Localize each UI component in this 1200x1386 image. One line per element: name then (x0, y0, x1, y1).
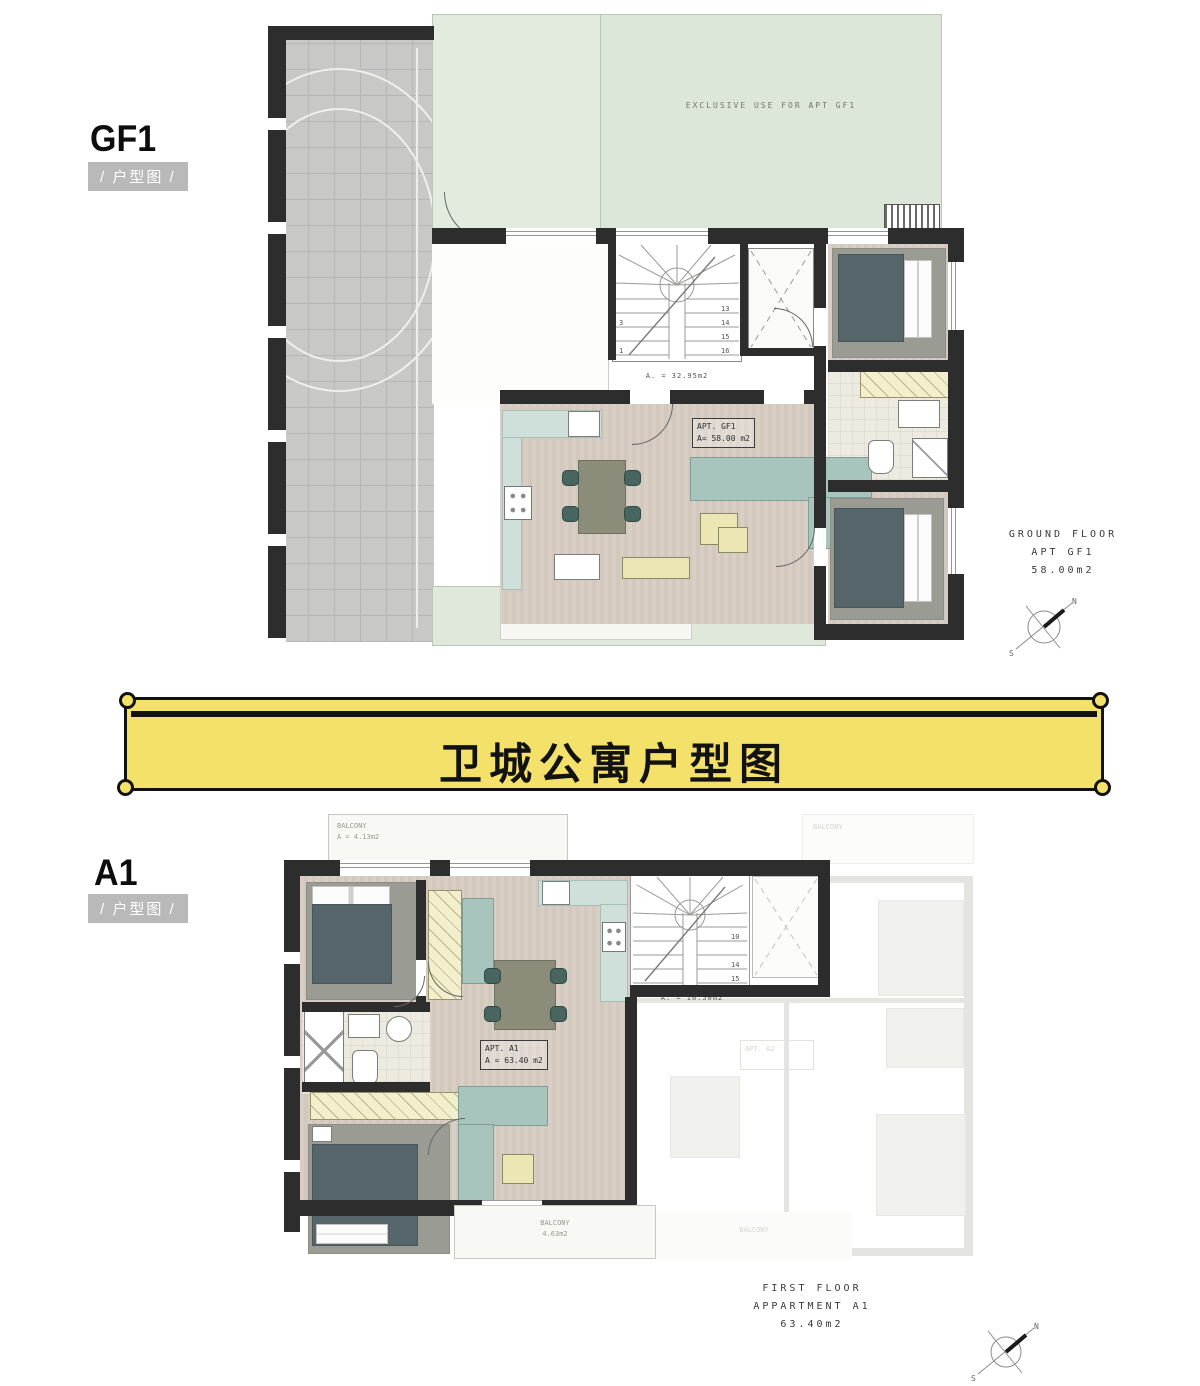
toilet-icon (868, 440, 894, 474)
wall-bathroom-bottom (828, 480, 964, 492)
wall-elevator-bottom (740, 348, 820, 356)
balcony-bottom-label: BALCONY 4.63m2 (455, 1218, 655, 1239)
a1-dining-table (494, 960, 556, 1030)
wardrobe (310, 1092, 462, 1120)
stair-area-label: A. = 32.95m2 (602, 372, 752, 380)
stair-step-number: 1 (619, 347, 623, 355)
tv-bench (622, 557, 690, 579)
stair-step-number: 13 (721, 305, 729, 313)
gf1-caption-floor: GROUND FLOOR (978, 526, 1148, 544)
apt-a1-area: A = 63.40 m2 (485, 1055, 543, 1067)
bathroom-sink (348, 1014, 380, 1038)
coffee-table (502, 1154, 534, 1184)
a1-plan-code: A1 (94, 852, 138, 894)
dining-chair (484, 968, 501, 984)
a1-compass: N S (968, 1320, 1044, 1384)
a1-plan-tag: / 户型图 / (88, 894, 188, 923)
dining-chair (624, 506, 641, 522)
stair-step-number: 15 (731, 975, 739, 983)
bedroom1-bed (838, 254, 904, 342)
window (616, 228, 708, 244)
ghost-bed (876, 1114, 966, 1216)
bedroom1-pillows (904, 260, 932, 338)
washing-machine-icon (386, 1016, 412, 1042)
banner-curl (1094, 779, 1111, 796)
a1-caption-area: 63.40m2 (722, 1316, 902, 1334)
garden-exclusive-note: EXCLUSIVE USE FOR APT GF1 (601, 101, 941, 110)
wall-stair-left (608, 244, 616, 360)
balcony-name: BALCONY (455, 1218, 655, 1229)
dining-chair (562, 506, 579, 522)
nightstand (312, 1126, 332, 1142)
gf1-plan-tag: / 户型图 / (88, 162, 188, 191)
a1-wall-bathroom-bottom (302, 1082, 430, 1092)
wall-top (268, 26, 434, 40)
wall-elevator-left (740, 244, 748, 356)
window (340, 860, 430, 876)
gf1-caption: GROUND FLOOR APT GF1 58.00m2 (978, 526, 1148, 580)
gf1-caption-apt: APT GF1 (978, 544, 1148, 562)
toilet-icon (352, 1050, 378, 1086)
shower-tray (912, 438, 948, 478)
stair-step-number: 14 (731, 961, 739, 969)
dining-chair (562, 470, 579, 486)
compass-south-label: S (1009, 649, 1014, 658)
balcony-area: 4.63m2 (455, 1229, 655, 1240)
a1-stairs-drawing: 10 14 15 (631, 875, 749, 987)
elevator-x-icon (753, 877, 819, 977)
kitchen-sink-cabinet (554, 554, 600, 580)
a1-floorplan: BALCONY A = 4.13m2 BALCONY APT. A2 BALCO… (282, 810, 982, 1272)
driveway-edge-line (416, 48, 418, 628)
window (828, 228, 888, 244)
a1-wall-living-right (625, 997, 637, 1205)
gf1-compass: N S (1006, 594, 1082, 660)
kitchen-appliance (568, 411, 600, 437)
stair-step-number: 14 (721, 319, 729, 327)
banner-stripe (131, 711, 1097, 717)
dining-chair (624, 470, 641, 486)
a1-elevator-shaft (752, 876, 820, 978)
ghost-bed (878, 900, 964, 996)
a1-wall-left (284, 860, 300, 1232)
a1-wall-core-bottom (630, 985, 830, 997)
compass-north-label: N (1072, 597, 1077, 606)
a1-kitchen-counter (600, 904, 628, 1002)
dining-table (578, 460, 626, 534)
apt-gf1-label: APT. GF1 A= 58.00 m2 (692, 418, 755, 448)
stair-step-number: 15 (721, 333, 729, 341)
coffee-table (718, 527, 748, 553)
banner-curl (1092, 692, 1109, 709)
bedroom2-pillows (904, 514, 932, 602)
ghost-balcony-top: BALCONY (802, 814, 974, 864)
balcony-area: A = 4.13m2 (337, 832, 379, 843)
stair-step-number: 3 (619, 319, 623, 327)
wall-bedrooms (814, 244, 826, 640)
apt-a1-label: APT. A1 A = 63.40 m2 (480, 1040, 548, 1070)
ghost-sofa (670, 1076, 740, 1158)
stair-step-number: 16 (721, 347, 729, 355)
balcony-name: BALCONY (337, 821, 379, 832)
gf1-floorplan: EXCLUSIVE USE FOR APT GF1 (262, 8, 970, 656)
a1-caption: FIRST FLOOR APPARTMENT A1 63.40m2 (722, 1280, 902, 1334)
title-banner: 卫城公寓户型图 (124, 697, 1104, 791)
door-opening (764, 390, 804, 404)
window (948, 262, 964, 330)
compass-north-label: N (1034, 1322, 1039, 1331)
a1-sofa (458, 1086, 548, 1126)
balcony-bottom: BALCONY 4.63m2 (454, 1205, 656, 1259)
apt-a1-name: APT. A1 (485, 1043, 543, 1055)
floorplan-page: GF1 / 户型图 / EXCLUSIVE USE FOR APT GF1 (0, 0, 1200, 1386)
driveway-paving (282, 28, 434, 642)
stairwell: 1 3 13 14 15 16 (612, 242, 742, 362)
window (948, 508, 964, 574)
door-opening (814, 528, 826, 566)
ghost-balcony-bottom: BALCONY (656, 1212, 852, 1260)
dining-chair (550, 1006, 567, 1022)
dining-chair (484, 1006, 501, 1022)
window (506, 228, 596, 244)
balcony-top-label: BALCONY A = 4.13m2 (337, 821, 379, 842)
wall-bathroom-top (828, 360, 964, 372)
apt-gf1-area: A= 58.00 m2 (697, 433, 750, 445)
dining-chair (550, 968, 567, 984)
stair-step-number: 10 (731, 933, 739, 941)
wall-left (268, 26, 286, 642)
ghost-balcony-bottom-label: BALCONY (656, 1226, 852, 1234)
banner-title: 卫城公寓户型图 (127, 730, 1101, 792)
a1-wall-core-right (818, 868, 830, 988)
sofa (690, 457, 872, 501)
a1-bedroom2-pillows (316, 1224, 388, 1244)
a1-caption-floor: FIRST FLOOR (722, 1280, 902, 1298)
window (450, 860, 530, 876)
door-opening (630, 390, 670, 404)
bedroom2-bed (834, 508, 904, 608)
a1-bedroom1-bed (312, 904, 392, 984)
bathroom-sink (898, 400, 940, 428)
entry-court (432, 244, 609, 404)
kitchen-appliance (542, 881, 570, 905)
banner-curl (119, 692, 136, 709)
a1-stairwell: 10 14 15 (630, 874, 750, 988)
ghost-balcony-top-label: BALCONY (813, 823, 843, 831)
banner-curl (117, 779, 134, 796)
a1-wall-bathroom-top (302, 1002, 430, 1012)
ghost-apt-a2-label: APT. A2 (745, 1045, 775, 1053)
stairs-drawing: 1 3 13 14 15 16 (613, 243, 741, 361)
wall-bottom (818, 624, 964, 640)
a1-caption-apt: APPARTMENT A1 (722, 1298, 902, 1316)
stove-icon (602, 922, 626, 952)
compass-south-label: S (971, 1374, 976, 1383)
door-opening (814, 308, 826, 346)
ghost-apt-a2-box: APT. A2 (740, 1040, 814, 1070)
shower-icon (304, 1010, 344, 1092)
wardrobe (860, 370, 952, 398)
ghost-bathroom (886, 1008, 964, 1068)
balcony-top: BALCONY A = 4.13m2 (328, 814, 568, 864)
gf1-caption-area: 58.00m2 (978, 562, 1148, 580)
apt-gf1-name: APT. GF1 (697, 421, 750, 433)
stove-icon (504, 486, 532, 520)
gf1-plan-code: GF1 (90, 118, 156, 160)
